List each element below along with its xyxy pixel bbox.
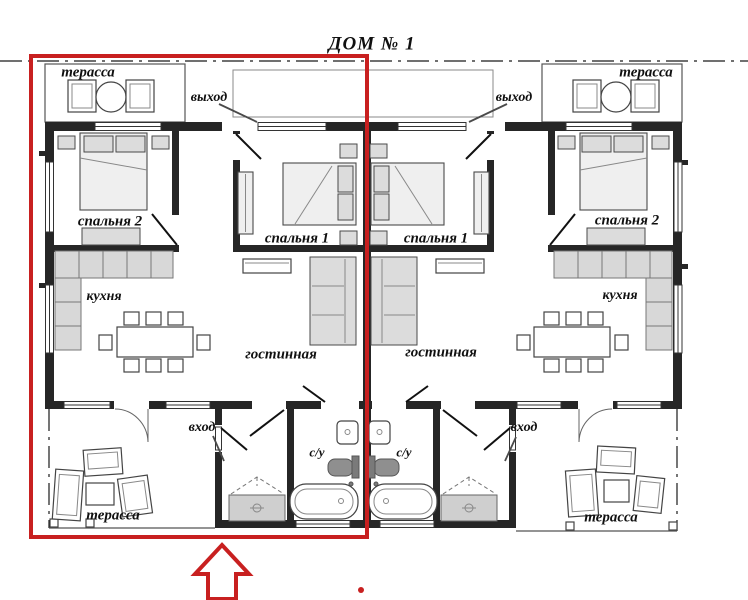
coffee-table	[604, 480, 629, 502]
toilet-tank	[352, 456, 359, 478]
kitchen-counter	[55, 251, 173, 278]
living-left-furniture	[243, 257, 356, 345]
door-leaf	[443, 410, 477, 436]
toilet-tank	[368, 456, 375, 478]
dining-chair	[588, 359, 603, 372]
label-exit-left: выход	[191, 91, 227, 105]
dining-chair	[197, 335, 210, 350]
dining-chair	[588, 312, 603, 325]
floor-plan-page: ДОМ № 1 терасса терасса выход выход спал…	[0, 0, 748, 600]
outdoor-armchair	[633, 476, 665, 514]
door-leaf	[236, 134, 261, 159]
plan-title: ДОМ № 1	[329, 35, 416, 54]
room-label-bedroom1-left: спальня 1	[265, 232, 329, 247]
door-leaf	[303, 386, 325, 402]
room-label-terrace-bottom-left: терасса	[86, 509, 140, 524]
bathroom-right-fixtures	[368, 421, 437, 519]
pillow	[614, 136, 643, 152]
exit-pointer	[219, 104, 257, 122]
dining-chair	[168, 312, 183, 325]
nightstand	[558, 136, 575, 149]
dresser	[82, 228, 140, 245]
coffee-table	[86, 483, 114, 505]
door-leaf	[221, 428, 247, 450]
kitchen-left-furniture	[55, 251, 210, 372]
nightstand	[340, 144, 357, 158]
nightstand	[652, 136, 669, 149]
dining-chair	[566, 312, 581, 325]
door-swing-arc	[579, 409, 612, 442]
room-label-kitchen-left: кухня	[86, 290, 121, 304]
label-entrance-right: вход	[511, 421, 538, 435]
door-leaf	[484, 428, 510, 450]
nightstand	[340, 231, 357, 245]
bathroom-left-fixtures	[290, 421, 359, 519]
label-exit-right: выход	[496, 91, 532, 105]
nightstand	[370, 144, 387, 158]
pillow	[374, 166, 389, 192]
dining-chair	[566, 359, 581, 372]
kitchen-counter	[554, 251, 672, 278]
room-label-kitchen-right: кухня	[602, 289, 637, 303]
deck-post	[669, 522, 677, 530]
deck-post	[50, 519, 58, 527]
door-leaf	[406, 386, 428, 402]
toilet	[374, 459, 399, 476]
room-label-bedroom2-right: спальня 2	[595, 214, 659, 229]
door-leaf	[250, 410, 284, 436]
dining-chair	[544, 359, 559, 372]
shower-left	[229, 477, 285, 521]
deck-post	[566, 522, 574, 530]
pillow	[338, 166, 353, 192]
room-label-bathroom-left: с/у	[309, 446, 324, 459]
rear-deck-outline	[233, 70, 493, 117]
pillow	[338, 194, 353, 220]
dining-chair	[146, 359, 161, 372]
room-label-terrace-top-right: терасса	[619, 66, 673, 81]
sink	[369, 421, 390, 444]
exit-pointer	[469, 104, 507, 122]
pillow	[84, 136, 113, 152]
nightstand	[58, 136, 75, 149]
dresser	[587, 228, 645, 245]
living-right-furniture	[371, 257, 484, 345]
dining-chair	[124, 312, 139, 325]
dining-table	[534, 327, 610, 357]
shower-right	[441, 477, 497, 521]
round-table	[96, 82, 126, 112]
room-label-bedroom1-right: спальня 1	[404, 232, 468, 247]
room-label-terrace-top-left: терасса	[61, 66, 115, 81]
dining-chair	[168, 359, 183, 372]
room-label-terrace-bottom-right: терасса	[584, 511, 638, 526]
door-swing-arc	[115, 409, 148, 442]
dining-chair	[615, 335, 628, 350]
room-label-living-right: гостинная	[405, 346, 477, 361]
pillow	[116, 136, 145, 152]
room-label-bathroom-right: с/у	[396, 446, 411, 459]
label-entrance-left: вход	[189, 421, 216, 435]
kitchen-counter	[55, 278, 81, 350]
pillow	[582, 136, 611, 152]
dining-chair	[99, 335, 112, 350]
door-leaf	[550, 214, 575, 245]
door-leaf	[466, 134, 491, 159]
highlight-arrow	[195, 545, 249, 599]
tv-stand	[436, 259, 484, 273]
dining-chair	[146, 312, 161, 325]
kitchen-right-furniture	[517, 251, 672, 372]
dining-chair	[517, 335, 530, 350]
toilet	[328, 459, 353, 476]
sofa	[371, 257, 417, 345]
red-dot	[358, 587, 364, 593]
pillow	[374, 194, 389, 220]
sink	[337, 421, 358, 444]
sofa	[310, 257, 356, 345]
dining-table	[117, 327, 193, 357]
tv-stand	[243, 259, 291, 273]
nightstand	[152, 136, 169, 149]
dining-chair	[124, 359, 139, 372]
room-label-bedroom2-left: спальня 2	[78, 215, 142, 230]
nightstand	[370, 231, 387, 245]
door-leaf	[152, 214, 177, 245]
dining-chair	[544, 312, 559, 325]
round-table	[601, 82, 631, 112]
kitchen-counter	[646, 278, 672, 350]
room-label-living-left: гостинная	[245, 348, 317, 363]
